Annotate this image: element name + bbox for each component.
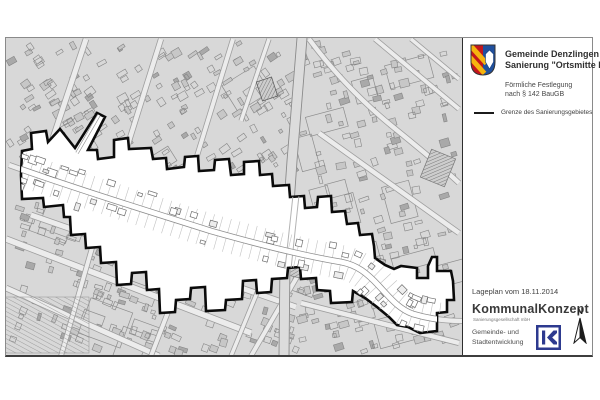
department-text: Gemeinde- und Stadtentwicklung <box>472 328 523 347</box>
map-sheet: Gemeinde Denzlingen Sanierung "Ortsmitte… <box>5 37 593 357</box>
plan-date: Lageplan vom 18.11.2014 <box>472 287 589 296</box>
title-block-footer: Lageplan vom 18.11.2014 KommunalKonzept … <box>472 287 589 350</box>
kommunalkonzept-logo-icon <box>536 325 561 350</box>
legend-item-boundary: Grenze des Sanierungsgebietes <box>474 109 592 116</box>
boundary-line-symbol <box>474 112 494 115</box>
north-arrow-icon <box>573 317 587 344</box>
plan-document: Gemeinde Denzlingen Sanierung "Ortsmitte… <box>0 0 600 400</box>
legend-panel: Gemeinde Denzlingen Sanierung "Ortsmitte… <box>462 38 592 355</box>
project-title: Sanierung "Ortsmitte II" <box>505 60 600 71</box>
municipality-title: Gemeinde Denzlingen <box>505 49 600 60</box>
legal-basis-text: Förmliche Festlegung nach § 142 BauGB <box>505 81 600 100</box>
municipal-coat-of-arms-icon <box>470 44 496 76</box>
plan-title-block: Gemeinde Denzlingen Sanierung "Ortsmitte… <box>463 38 592 99</box>
legend-label: Grenze des Sanierungsgebietes <box>501 109 592 116</box>
north-indicator: N <box>572 307 588 349</box>
